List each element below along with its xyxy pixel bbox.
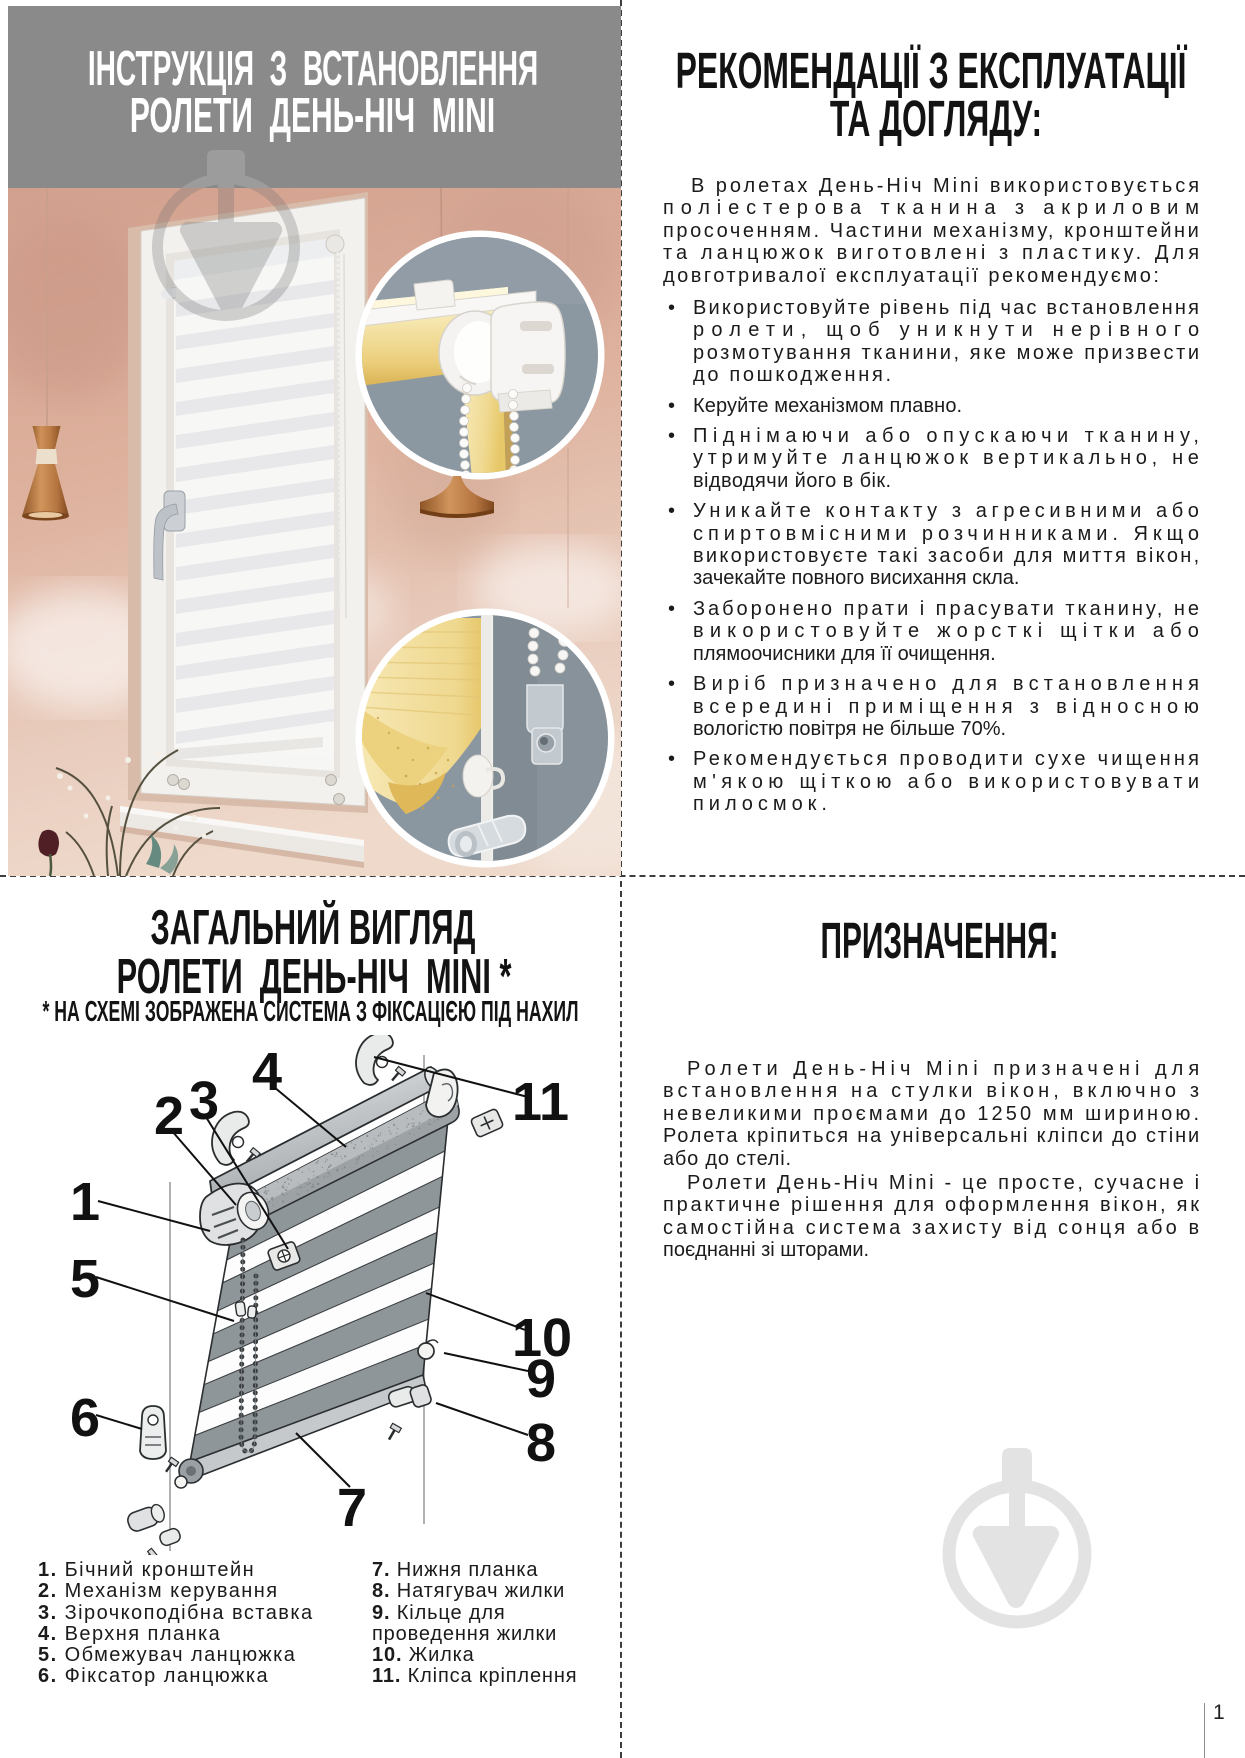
svg-text:6: 6 <box>70 1388 100 1448</box>
svg-text:2: 2 <box>154 1086 184 1146</box>
svg-text:4: 4 <box>252 1042 282 1102</box>
svg-text:7: 7 <box>337 1478 367 1538</box>
svg-text:5: 5 <box>70 1249 100 1309</box>
svg-text:10: 10 <box>512 1308 572 1368</box>
svg-text:11: 11 <box>512 1072 569 1132</box>
svg-text:8: 8 <box>526 1413 556 1473</box>
svg-text:3: 3 <box>189 1071 219 1131</box>
svg-text:1: 1 <box>70 1172 100 1232</box>
